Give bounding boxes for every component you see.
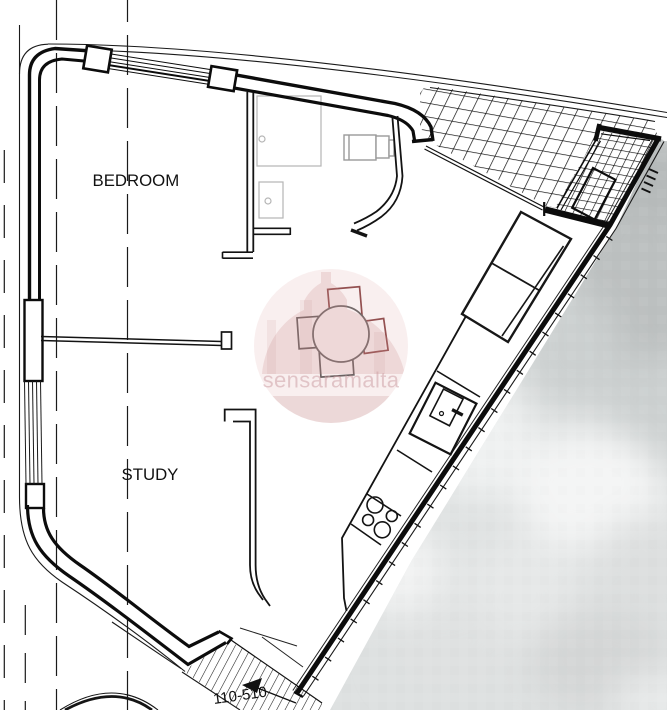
svg-text:STUDY: STUDY (122, 465, 179, 484)
svg-text:sensaramalta: sensaramalta (263, 368, 400, 393)
svg-text:BEDROOM: BEDROOM (93, 171, 180, 190)
